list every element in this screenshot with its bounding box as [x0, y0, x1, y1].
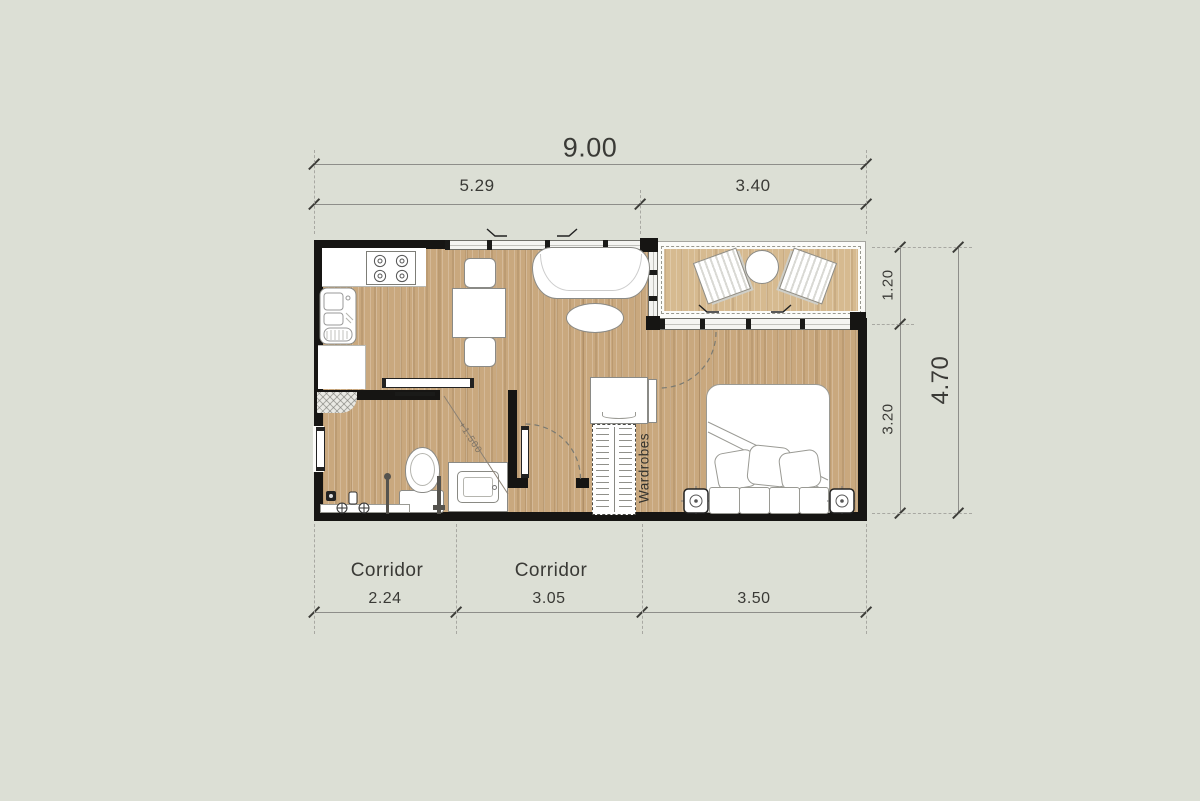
bathroom-wall-right — [508, 390, 517, 478]
coffee-table — [566, 303, 624, 333]
extension-line — [314, 150, 315, 234]
corner-post — [640, 238, 658, 252]
dim-label-right-top: 1.20 — [880, 269, 897, 300]
nightstand-right-icon — [827, 486, 857, 516]
window-band-terrace-bedroom — [660, 318, 852, 330]
window-frame-marker — [660, 319, 665, 329]
bed-pillow — [778, 448, 823, 491]
window-frame-marker — [487, 240, 492, 250]
wardrobe-hangers-left — [596, 428, 609, 511]
casement-mark-icon — [770, 303, 792, 314]
shower-pole-2-base — [433, 505, 445, 510]
floor-plan-canvas: 9.00 5.29 3.40 1.20 3.20 4.70 Corridor C… — [0, 0, 1200, 801]
casement-mark-icon — [698, 303, 720, 314]
sliding-door-track — [395, 392, 435, 396]
extension-line — [866, 524, 867, 634]
dim-label-bottom-1: 2.24 — [368, 590, 401, 608]
extension-line — [640, 190, 641, 234]
bed-footboard-cushion — [739, 487, 770, 514]
shower-pole-1 — [386, 478, 389, 514]
sofa — [532, 247, 650, 299]
dim-label-right-total: 4.70 — [927, 356, 955, 405]
shower-pole-1-knob — [384, 473, 391, 480]
dim-line — [314, 204, 866, 205]
wardrobes — [592, 424, 636, 515]
dim-label-right-bottom: 3.20 — [880, 403, 897, 434]
casement-mark-icon — [556, 227, 578, 238]
dim-label-top-total: 9.00 — [563, 133, 618, 164]
extension-line — [314, 524, 315, 634]
bedroom-door-swing-arc — [660, 332, 717, 389]
window-frame-marker — [649, 270, 657, 275]
dim-line — [958, 247, 959, 513]
toilet-bowl — [405, 447, 440, 493]
extension-line — [866, 150, 867, 234]
bed-footboard-cushion — [799, 487, 829, 514]
dim-label-top-left: 5.29 — [459, 176, 494, 196]
extension-line — [872, 513, 972, 514]
exterior-wall-left-lower — [314, 472, 323, 521]
dressing-table-side-panel — [648, 379, 657, 423]
dim-line — [314, 612, 866, 613]
shower-faucet-icon — [334, 490, 374, 516]
terrace — [656, 241, 866, 319]
dim-label-bottom-2: 3.05 — [532, 590, 565, 608]
extension-line — [872, 247, 972, 248]
sofa-seat-line — [540, 254, 642, 291]
dining-chair-top — [464, 258, 496, 288]
dining-chair-bottom — [464, 337, 496, 367]
toilet-seat-line — [410, 453, 435, 486]
terrace-round-table — [745, 250, 779, 284]
nightstand-left-icon — [681, 486, 711, 516]
window-frame-marker — [649, 296, 657, 301]
dressing-table-bowl — [602, 412, 636, 419]
left-door-leaf — [316, 427, 325, 471]
wardrobe-rod — [614, 427, 615, 512]
wardrobes-label: Wardrobes — [637, 433, 652, 503]
corridor-label-2: Corridor — [515, 560, 588, 582]
extension-line — [872, 324, 914, 325]
floor-drain-icon — [326, 491, 336, 501]
window-frame-marker — [746, 319, 751, 329]
window-frame-marker — [800, 319, 805, 329]
dim-line — [900, 247, 901, 513]
dim-line — [314, 164, 866, 165]
bathroom-sliding-door-leaf — [382, 378, 474, 388]
corner-post — [646, 316, 660, 330]
bed-footboard-cushion — [709, 487, 740, 514]
corridor-label-1: Corridor — [351, 560, 424, 582]
wardrobe-hangers-right — [619, 428, 632, 511]
dim-label-bottom-3: 3.50 — [737, 590, 770, 608]
dim-label-top-right: 3.40 — [735, 176, 770, 196]
corridor-door-swing-arc — [525, 424, 582, 481]
bed-footboard-cushion — [769, 487, 800, 514]
stove-icon — [366, 251, 416, 285]
casement-mark-icon — [486, 227, 508, 238]
exterior-wall-right — [858, 318, 867, 521]
extension-line — [642, 524, 643, 634]
dressing-table — [590, 377, 648, 424]
dining-table — [452, 288, 506, 338]
window-frame-marker — [700, 319, 705, 329]
window-frame-marker — [445, 240, 450, 250]
kitchen-lower-cabinet — [318, 345, 366, 389]
kitchen-sink-icon — [319, 287, 357, 345]
extension-line — [456, 524, 457, 634]
